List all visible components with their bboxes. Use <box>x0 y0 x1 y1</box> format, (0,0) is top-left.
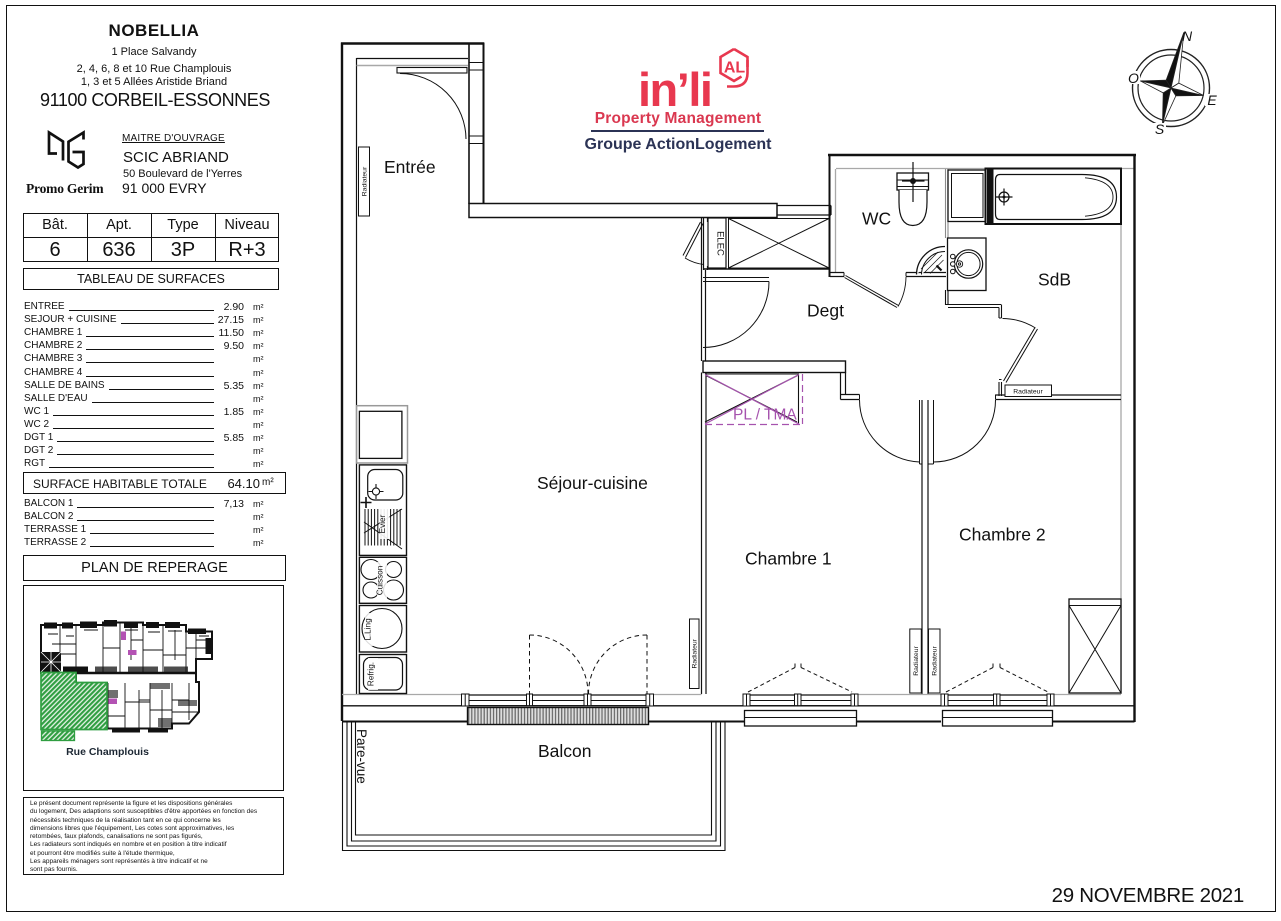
svg-text:Refrig.: Refrig. <box>367 662 376 686</box>
svg-text:Chambre 2: Chambre 2 <box>959 525 1046 545</box>
svg-text:Radiateur: Radiateur <box>1013 389 1043 396</box>
svg-text:Degt: Degt <box>807 301 844 321</box>
svg-text:Séjour-cuisine: Séjour-cuisine <box>537 473 648 493</box>
svg-text:Entrée: Entrée <box>384 157 436 177</box>
svg-text:SdB: SdB <box>1038 270 1071 290</box>
svg-text:WC: WC <box>862 209 891 229</box>
svg-text:Cuisson: Cuisson <box>376 565 385 595</box>
svg-text:Radiateur: Radiateur <box>913 646 920 676</box>
svg-text:Radiateur: Radiateur <box>932 646 939 676</box>
svg-text:N: N <box>1182 28 1193 44</box>
svg-text:Radiateur: Radiateur <box>692 638 699 668</box>
svg-text:Chambre 1: Chambre 1 <box>745 549 832 569</box>
svg-text:Evier: Evier <box>378 514 387 533</box>
svg-text:AL: AL <box>724 60 746 77</box>
svg-text:Pare-vue: Pare-vue <box>354 729 369 784</box>
svg-text:S: S <box>1155 121 1165 137</box>
svg-text:O: O <box>1128 70 1139 86</box>
svg-text:Radiateur: Radiateur <box>362 166 369 196</box>
svg-text:L.Ling: L.Ling <box>364 618 373 641</box>
svg-text:Balcon: Balcon <box>538 741 592 761</box>
svg-text:ELEC: ELEC <box>715 231 726 256</box>
svg-text:E: E <box>1207 92 1217 108</box>
svg-text:PL / TMA: PL / TMA <box>733 407 797 424</box>
